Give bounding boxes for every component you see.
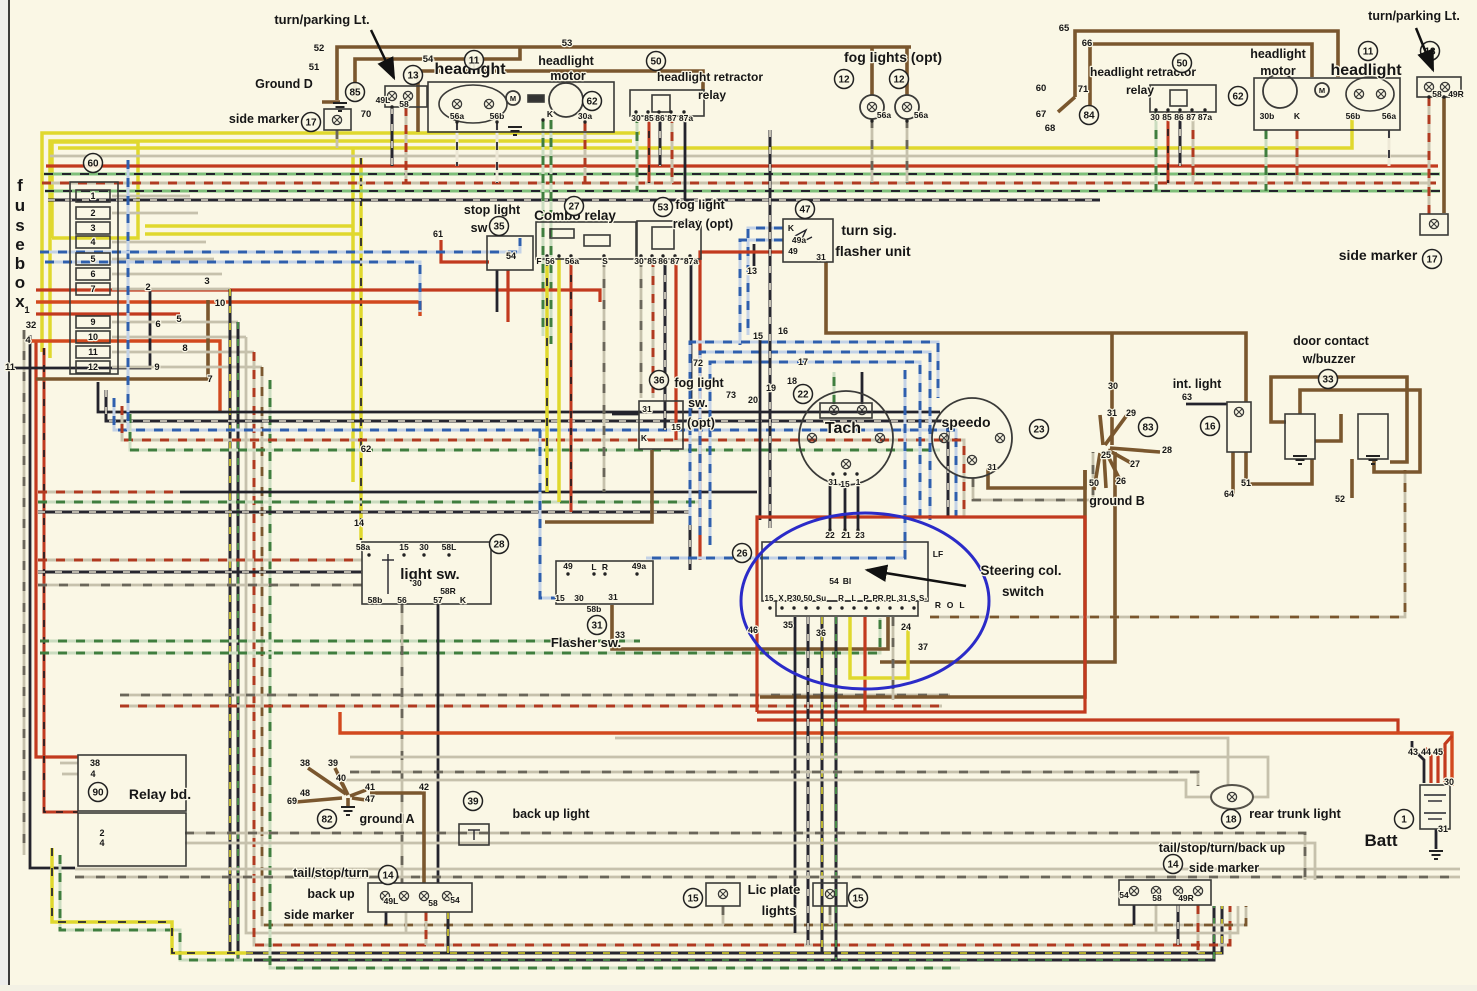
label: R (838, 594, 844, 603)
circled-number: 36 (650, 371, 669, 390)
label: 87 (670, 256, 680, 266)
label: tail/stop/turn (293, 866, 369, 880)
circled-number: 90 (89, 783, 108, 802)
label: 19 (766, 383, 776, 393)
label: 86 (658, 256, 668, 266)
circled-number: 82 (318, 810, 337, 829)
circled-number: 12 (890, 70, 909, 89)
label: K (547, 109, 554, 119)
circled-number: 31 (588, 616, 607, 635)
label: 54 (450, 895, 460, 905)
label: Ground D (255, 77, 313, 91)
label: 32 (26, 320, 37, 331)
wire-brn (352, 798, 366, 800)
label: 85 (647, 256, 657, 266)
label: 10 (215, 298, 226, 309)
label: 57 (433, 595, 443, 605)
label: 30 (1444, 777, 1454, 787)
label: 27 (1130, 459, 1140, 469)
label: fog lights (opt) (844, 49, 942, 65)
terminal-dot (804, 606, 807, 609)
label: relay (opt) (673, 217, 733, 231)
label: ground B (1089, 494, 1145, 508)
label: headlight (1250, 47, 1306, 61)
label: 87a (1198, 112, 1212, 122)
terminal-dot (876, 606, 879, 609)
label: 30 (574, 593, 584, 603)
label: 44 (1421, 747, 1431, 757)
label: 70 (361, 109, 372, 120)
label: L (852, 594, 857, 603)
terminal-dot (852, 606, 855, 609)
label: 30 (1150, 112, 1160, 122)
label: 87 (667, 113, 677, 123)
label: 52 (314, 43, 325, 54)
circled-number: 28 (490, 535, 509, 554)
terminal-dot (912, 606, 915, 609)
margin-panel (0, 0, 9, 991)
terminal-dot (402, 553, 405, 556)
label: 53 (562, 38, 573, 49)
label: 38 (90, 758, 100, 768)
label: 2 (90, 208, 95, 218)
label: f (17, 176, 23, 195)
terminal-dot (905, 119, 908, 122)
label: 38 (300, 758, 310, 768)
circled-number: 13 (404, 66, 423, 85)
label: 71 (1078, 84, 1089, 95)
label: 23 (855, 530, 865, 540)
circled-number-text: 15 (687, 894, 699, 905)
label: 60 (1036, 83, 1047, 94)
label: 15 (753, 331, 763, 341)
label: 41 (365, 782, 375, 792)
circled-number-text: 16 (1204, 422, 1216, 433)
circled-number-text: 18 (1225, 815, 1237, 826)
label: F (536, 256, 541, 266)
label: o (15, 273, 25, 292)
terminal-dot (1442, 95, 1445, 98)
circled-number: 53 (654, 198, 673, 217)
terminal-dot (447, 553, 450, 556)
terminal-dot (870, 119, 873, 122)
terminal-dot (792, 606, 795, 609)
label: 3 (204, 276, 209, 287)
circled-number: 85 (346, 83, 365, 102)
label: 56a (450, 111, 464, 121)
label: 21 (841, 530, 851, 540)
label: 40 (336, 773, 346, 783)
terminal-dot (768, 606, 771, 609)
label: S (602, 256, 608, 266)
label: turn/parking Lt. (1368, 9, 1460, 23)
label: 17 (798, 357, 808, 367)
label: 58b (587, 604, 602, 614)
label: 86 (655, 113, 665, 123)
label: 58 (399, 99, 409, 109)
label: Bl (843, 576, 852, 586)
label: 58 (428, 898, 438, 908)
circled-number: 35 (490, 217, 509, 236)
label: 50 (804, 594, 813, 603)
label: 33 (615, 630, 625, 640)
circled-number-text: 14 (382, 871, 394, 882)
circled-number: 14 (379, 866, 398, 885)
label: 26 (1116, 476, 1126, 486)
label: 52 (1335, 494, 1345, 504)
label: motor (1260, 64, 1296, 78)
terminal-dot (422, 553, 425, 556)
label: M (1319, 86, 1325, 95)
circled-number: 16 (1201, 417, 1220, 436)
label: 31 (816, 252, 826, 262)
label: 58 (1152, 893, 1162, 903)
wiring-diagram-canvas: turn/parking Lt.Ground Dside markerheadl… (0, 0, 1477, 991)
circled-number: 62 (583, 92, 602, 111)
label: 87a (679, 113, 693, 123)
terminal-dot (635, 572, 638, 575)
label: side marker (1339, 247, 1418, 263)
terminal-dot (566, 572, 569, 575)
terminal-dot (828, 606, 831, 609)
label: Tach (825, 420, 861, 437)
terminal-dot (864, 606, 867, 609)
circled-number: 22 (794, 385, 813, 404)
label: 54 (423, 54, 434, 65)
label: switch (1002, 584, 1044, 599)
label: 25 (1101, 450, 1111, 460)
label: 4 (90, 769, 95, 779)
label: 24 (901, 622, 911, 632)
circled-number-text: 50 (650, 57, 662, 68)
terminal-dot (888, 606, 891, 609)
circled-number: 12 (835, 70, 854, 89)
label: 6 (90, 269, 95, 279)
label: motor (550, 69, 586, 83)
label: 54 (506, 251, 516, 261)
label: K (460, 595, 467, 605)
terminal-dot (541, 118, 544, 121)
circled-number: 62 (1229, 87, 1248, 106)
label: 31 (1438, 824, 1448, 834)
label: 58L (442, 542, 457, 552)
terminal-dot (557, 254, 560, 257)
label: O (947, 600, 954, 610)
label: 67 (1036, 109, 1047, 120)
label: 29 (1126, 408, 1136, 418)
label: 62 (361, 444, 372, 455)
label: 49R (1448, 89, 1464, 99)
label: 8 (182, 343, 187, 354)
label: 56b (490, 111, 505, 121)
label: 1 (24, 305, 30, 316)
label: 2 (145, 282, 150, 293)
circled-number-text: 31 (591, 621, 603, 632)
terminal-dot (855, 472, 858, 475)
circled-number-text: 22 (797, 390, 809, 401)
label: 18 (787, 376, 797, 386)
label: 15 (765, 594, 774, 603)
label: 68 (1045, 123, 1056, 134)
label: PR (872, 594, 883, 603)
margin-panel (0, 985, 1477, 991)
label: Su (816, 594, 826, 603)
label: 4 (25, 335, 31, 346)
terminal-dot (780, 606, 783, 609)
terminal-dot (900, 606, 903, 609)
circled-number-text: 84 (1083, 111, 1095, 122)
terminal-dot (592, 572, 595, 575)
label: 50 (1089, 478, 1099, 488)
circled-number: 26 (733, 544, 752, 563)
circled-number-text: 50 (1176, 59, 1188, 70)
label: 20 (748, 395, 758, 405)
label: 49 (563, 561, 573, 571)
label: 51 (309, 62, 320, 73)
label: 58b (368, 595, 383, 605)
label: Lic plate (748, 882, 801, 897)
label: int. light (1173, 377, 1222, 391)
label: 49a (632, 561, 646, 571)
label: 56 (545, 256, 555, 266)
label: M (510, 94, 516, 103)
label: 31 (1107, 408, 1117, 418)
label: 56a (1382, 111, 1396, 121)
label: 48 (300, 788, 310, 798)
label: R (935, 600, 941, 610)
wiring-diagram-page: turn/parking Lt.Ground Dside markerheadl… (0, 0, 1477, 991)
label: X (778, 594, 784, 603)
component-box (528, 95, 544, 102)
terminal-dot (367, 553, 370, 556)
label: tail/stop/turn/back up (1159, 841, 1286, 855)
label: 3 (90, 223, 95, 233)
circled-number: 23 (1030, 420, 1049, 439)
circled-number: 50 (647, 52, 666, 71)
label: rear trunk light (1249, 806, 1341, 821)
label: 39 (328, 758, 338, 768)
label: headlight (538, 54, 594, 68)
label: b (15, 254, 25, 273)
label: 15 (399, 542, 409, 552)
circled-number: 83 (1139, 418, 1158, 437)
label: turn sig. (841, 222, 896, 238)
label: 36 (816, 628, 826, 638)
label: 6 (155, 319, 160, 330)
label: u (15, 196, 25, 215)
label: 28 (1162, 445, 1172, 455)
label: 85 (644, 113, 654, 123)
label: headlight retractor (657, 70, 763, 84)
label: L (591, 562, 596, 572)
circled-number-text: 14 (1167, 860, 1179, 871)
label: 69 (287, 796, 297, 806)
label: 63 (1182, 392, 1192, 402)
label: 46 (748, 625, 758, 635)
circled-number-text: 13 (407, 71, 419, 82)
label: relay (698, 88, 726, 102)
circled-number-text: 62 (1232, 92, 1244, 103)
label: speedo (941, 414, 990, 430)
label: 56a (877, 110, 891, 120)
label: 64 (1224, 489, 1234, 499)
label: 73 (726, 390, 736, 400)
label: flasher unit (835, 243, 911, 259)
label: 1 (856, 477, 861, 487)
circled-number: 18 (1222, 810, 1241, 829)
circled-number-text: 17 (305, 118, 317, 129)
label: s (15, 216, 24, 235)
label: 87 (1186, 112, 1196, 122)
circled-number: 47 (796, 200, 815, 219)
label: 66 (1082, 38, 1093, 49)
label: 35 (783, 620, 793, 630)
circled-number-text: 53 (657, 203, 669, 214)
circled-number: 15 (684, 889, 703, 908)
label: 58 (1432, 89, 1442, 99)
circled-number-text: 85 (349, 88, 361, 99)
label: 56a (565, 256, 579, 266)
label: Flasher sw. (551, 635, 621, 650)
label: 49L (376, 95, 391, 105)
label: S (910, 594, 916, 603)
circled-number-text: 11 (1363, 47, 1374, 58)
label: 16 (778, 326, 788, 336)
label: light sw. (400, 566, 459, 583)
label: 31 (608, 592, 618, 602)
label: w/buzzer (1302, 352, 1356, 366)
circled-number-text: 33 (1322, 375, 1334, 386)
circled-number-text: 90 (92, 788, 104, 799)
circled-number: 84 (1080, 106, 1099, 125)
label: 61 (433, 229, 443, 239)
label: K (788, 223, 795, 233)
circled-number: 50 (1173, 54, 1192, 73)
label: Relay bd. (129, 786, 191, 802)
circled-number: 39 (464, 792, 483, 811)
circled-number-text: 60 (87, 159, 99, 170)
label: 65 (1059, 23, 1070, 34)
circled-number: 60 (84, 154, 103, 173)
label: 15 (555, 593, 565, 603)
label: 30 (1108, 381, 1118, 391)
label: 54 (829, 576, 839, 586)
label: 51 (1241, 478, 1251, 488)
label: relay (1126, 83, 1154, 97)
label: 30 (631, 113, 641, 123)
circled-number: 17 (1423, 250, 1442, 269)
circled-number-text: 23 (1033, 425, 1045, 436)
label: back up light (512, 807, 590, 821)
circled-number-text: 17 (1426, 255, 1438, 266)
circled-number-text: 36 (653, 376, 665, 387)
label: 56a (914, 110, 928, 120)
label: 5 (176, 314, 182, 325)
circled-number-text: 35 (493, 222, 505, 233)
circled-number: 33 (1319, 370, 1338, 389)
label: sw. (688, 396, 708, 410)
label: side marker (229, 112, 299, 126)
label: 10 (88, 332, 98, 342)
label: 56b (1346, 111, 1361, 121)
label: 49R (1178, 893, 1194, 903)
label: 45 (1433, 747, 1443, 757)
circled-number: 11 (1359, 42, 1378, 61)
terminal-dot (843, 472, 846, 475)
label: 1 (90, 191, 95, 201)
label: Steering col. (980, 563, 1061, 578)
label: L (959, 600, 964, 610)
circled-number-text: 15 (852, 894, 864, 905)
label: side marker (1189, 861, 1259, 875)
label: 7 (90, 284, 95, 294)
label: fog light (675, 198, 725, 212)
terminal-dot (816, 606, 819, 609)
label: LF (933, 549, 943, 559)
terminal-dot (831, 472, 834, 475)
circled-number-text: 27 (568, 202, 580, 213)
label: 42 (419, 782, 429, 792)
margin-panel (8, 0, 10, 991)
label: 14 (354, 518, 364, 528)
circled-number-text: 28 (493, 540, 505, 551)
label: stop light (464, 203, 521, 217)
label: 7 (207, 374, 212, 385)
label: K (641, 433, 648, 443)
circled-number: 14 (1164, 855, 1183, 874)
label: 85 (1162, 112, 1172, 122)
label: door contact (1293, 334, 1370, 348)
label: 31 (642, 404, 652, 414)
label: R (602, 562, 608, 572)
label: 58a (356, 542, 370, 552)
label: 9 (90, 317, 95, 327)
label: 30a (578, 111, 592, 121)
label: 22 (825, 530, 835, 540)
label: back up (307, 887, 355, 901)
label: turn/parking Lt. (274, 12, 369, 27)
label: 31 (828, 477, 838, 487)
circled-number-text: 12 (893, 75, 905, 86)
circled-number: 1 (1395, 810, 1414, 829)
label: lights (762, 903, 797, 918)
circled-number-text: 62 (586, 97, 598, 108)
label: 4 (90, 237, 95, 247)
label: 31 (899, 594, 908, 603)
label: 49 (788, 246, 798, 256)
label: 30 (412, 578, 422, 588)
label: 56 (397, 595, 407, 605)
label: P (863, 594, 869, 603)
label: 30 (419, 542, 429, 552)
label: 37 (918, 642, 928, 652)
label: Batt (1364, 831, 1397, 850)
circled-number-text: 47 (799, 205, 811, 216)
circled-number: 27 (565, 197, 584, 216)
label: 30 (634, 256, 644, 266)
circled-number: 17 (302, 113, 321, 132)
label: sw (471, 221, 488, 235)
circled-number-text: 11 (469, 56, 480, 67)
terminal-dot (840, 606, 843, 609)
circled-number-text: 82 (321, 815, 333, 826)
label: e (15, 235, 24, 254)
label: side marker (284, 908, 354, 922)
label: 13 (747, 266, 757, 276)
label: 15 (671, 422, 681, 432)
label: PL (886, 594, 896, 603)
circled-number-text: 26 (736, 549, 748, 560)
